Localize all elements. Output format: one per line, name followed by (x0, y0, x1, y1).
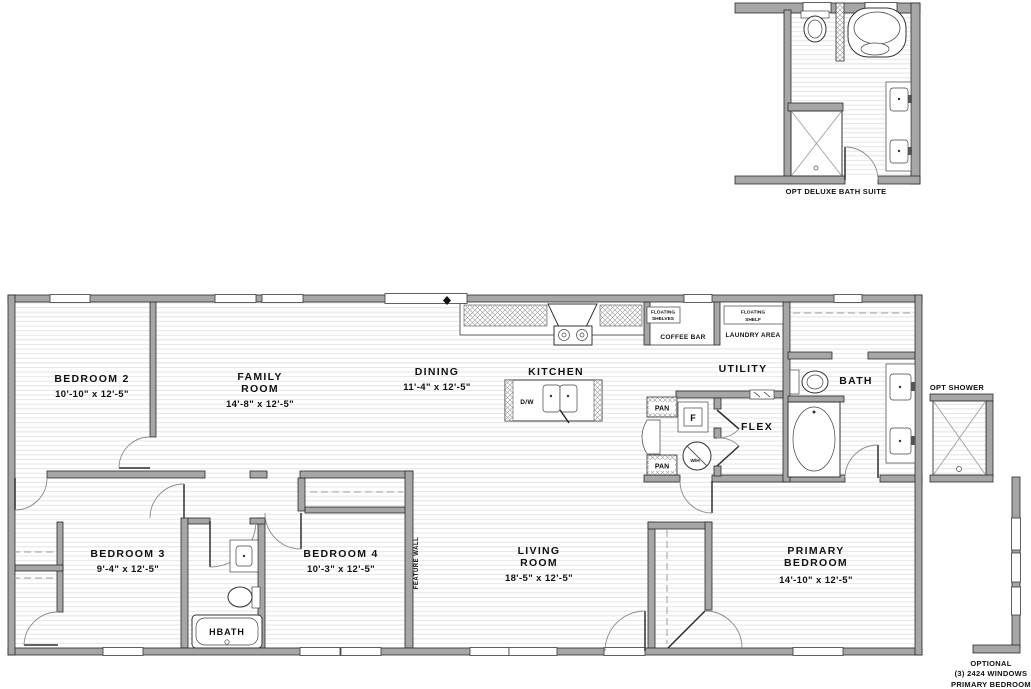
window (300, 648, 340, 656)
window (1012, 587, 1021, 615)
kitchen-cabinet-right (600, 305, 642, 326)
flex-vent-box (750, 390, 774, 399)
dining-label: DINING (415, 366, 460, 378)
floating-shelves-label-2: SHELVES (652, 316, 675, 322)
living-room-label-2: ROOM (520, 557, 558, 569)
bedroom4-label: BEDROOM 4 (303, 548, 378, 560)
window (50, 295, 90, 303)
bedroom2-dims: 10'-10" x 12'-5" (55, 389, 129, 400)
window (215, 295, 256, 303)
bedroom4-dims: 10'-3" x 12'-5" (307, 564, 375, 575)
front-entry (385, 294, 467, 306)
hbath-label: HBATH (209, 627, 245, 637)
deluxe-tub-icon (848, 8, 906, 57)
window (684, 295, 712, 303)
window (793, 648, 843, 656)
bedroom3-label: BEDROOM 3 (90, 548, 165, 560)
pantry-lower-label: PAN (655, 464, 669, 471)
deluxe-shower-icon (791, 111, 842, 176)
opt-shower-detail: OPT SHOWER (930, 383, 993, 482)
primary-closet-wall (648, 522, 655, 648)
bath-tub-icon (788, 402, 840, 477)
floating-shelf-label-2: SHELF (745, 317, 761, 323)
rear-door-opening (604, 648, 645, 656)
dishwasher-label: D/W (520, 399, 534, 406)
laundry-area-label: LAUNDRY AREA (726, 332, 781, 339)
floor-plan-page: D/W FLOATING SHELVES COFFEE BAR FLOATING… (0, 0, 1031, 689)
flex-label: FLEX (741, 421, 773, 433)
dining-dims: 11'-4" x 12'-5" (403, 382, 471, 393)
primary-bedroom-label-2: BEDROOM (784, 557, 848, 569)
water-heater-label: W/H (690, 458, 700, 464)
utility-label: UTILITY (719, 363, 768, 375)
optional-windows-caption-2: (3) 2424 WINDOWS (955, 669, 1028, 678)
island-sink-icon (560, 385, 577, 412)
family-room-label-2: ROOM (241, 383, 279, 395)
deluxe-bath-caption: OPT DELUXE BATH SUITE (786, 187, 887, 196)
window (341, 648, 381, 656)
primary-bedroom-dims: 14'-10" x 12'-5" (779, 575, 853, 586)
family-room-dims: 14'-8" x 12'-5" (226, 399, 294, 410)
bath-label: BATH (839, 375, 873, 387)
furnace-label: F (690, 413, 696, 423)
window (103, 648, 143, 656)
deluxe-bath-detail: OPT DELUXE BATH SUITE (735, 3, 920, 197)
floating-shelf-label-1: FLOATING (741, 310, 765, 316)
bedroom3-dims: 9'-4" x 12'-5" (97, 564, 159, 575)
window (1012, 518, 1021, 550)
kitchen-label: KITCHEN (528, 366, 584, 378)
pantry-upper-label: PAN (655, 406, 669, 413)
living-room-label-1: LIVING (518, 545, 561, 557)
feature-wall-label: FEATURE WALL (414, 537, 420, 590)
window (509, 648, 557, 656)
hbath-vanity-icon (230, 540, 258, 572)
kitchen-cabinet-left (464, 305, 547, 326)
hbath-toilet-icon (228, 587, 260, 608)
bath-toilet-icon (790, 370, 828, 394)
coffee-bar-label: COFFEE BAR (660, 334, 705, 341)
optional-windows-caption-1: OPTIONAL (970, 659, 1011, 668)
deluxe-divider-wall (836, 3, 844, 61)
family-room-label-1: FAMILY (237, 371, 282, 383)
living-room-dims: 18'-5" x 12'-5" (505, 573, 573, 584)
optional-windows-caption-3: PRIMARY BEDROOM (951, 680, 1031, 689)
window (834, 295, 862, 303)
bedroom2-label: BEDROOM 2 (54, 373, 129, 385)
utility-counter (642, 420, 660, 454)
island-sink-icon (543, 385, 560, 412)
deluxe-vanity-icon (886, 82, 912, 171)
water-heater-icon: W/H (683, 442, 711, 470)
primary-bedroom-label-1: PRIMARY (787, 545, 844, 557)
main-floor-plan: D/W FLOATING SHELVES COFFEE BAR FLOATING… (8, 294, 922, 656)
optional-windows-detail: OPTIONAL (3) 2424 WINDOWS PRIMARY BEDROO… (951, 477, 1031, 689)
window (470, 648, 509, 656)
opt-shower-caption: OPT SHOWER (930, 383, 985, 392)
feature-wall (405, 471, 413, 648)
floating-shelves-label-1: FLOATING (651, 310, 675, 316)
window (262, 295, 303, 303)
bath-vanity-icon (886, 364, 915, 463)
kitchen-island: D/W (505, 380, 602, 423)
floor-plan-drawing: D/W FLOATING SHELVES COFFEE BAR FLOATING… (0, 0, 1031, 689)
window (1012, 553, 1021, 582)
opt-shower-icon (933, 401, 986, 475)
